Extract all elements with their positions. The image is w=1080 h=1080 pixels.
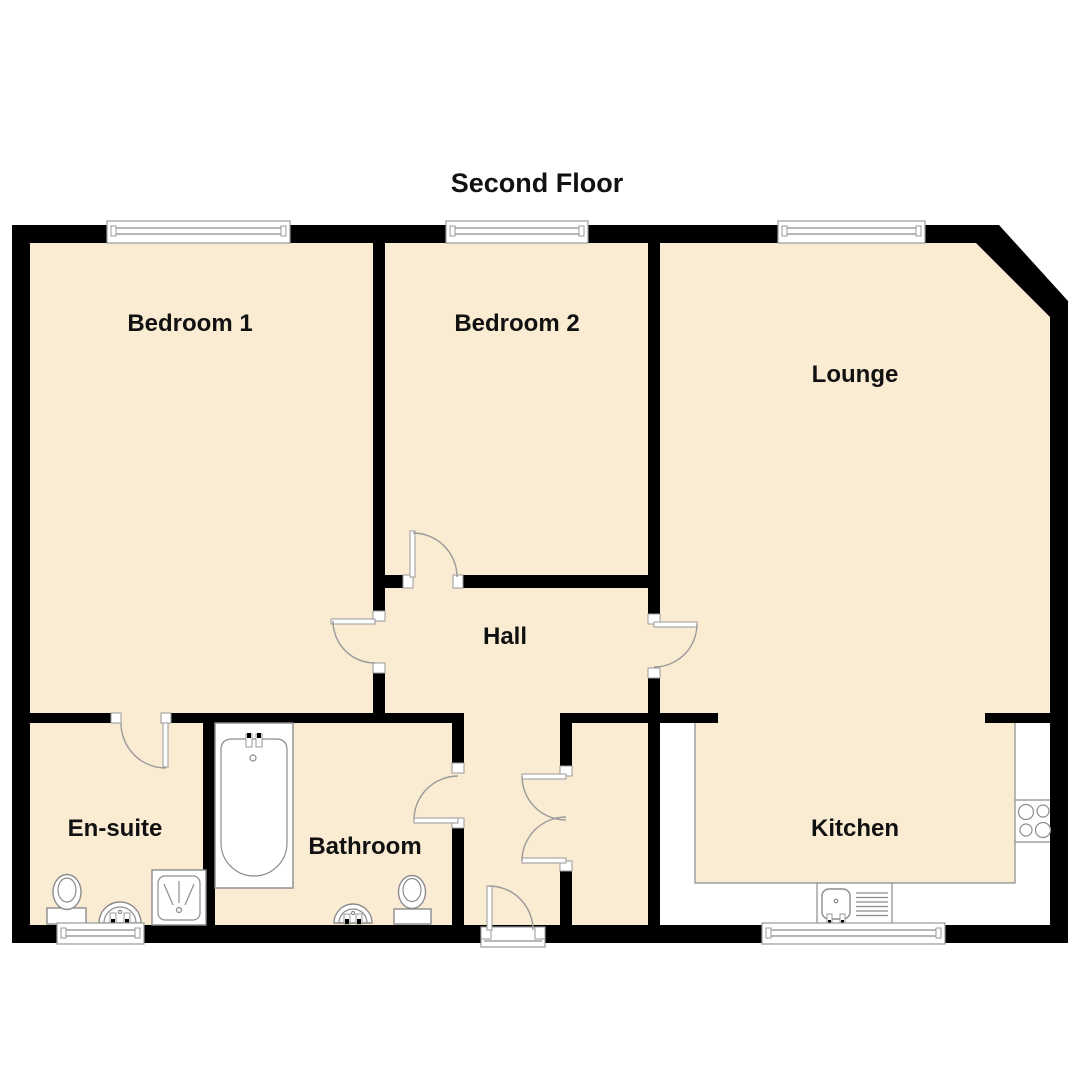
wall-bedroom2-south-right — [463, 575, 650, 588]
wall-bedroom1-east-upper — [373, 243, 385, 613]
wall-bathroom-north — [215, 713, 452, 723]
wall-bedroom2-south-left — [385, 575, 405, 588]
wall-ensuite-north-right — [169, 713, 203, 723]
room-label-hall: Hall — [483, 623, 527, 650]
floor-plan-page: Second Floor — [0, 0, 1080, 1080]
room-label-bathroom: Bathroom — [308, 833, 421, 860]
wall-ensuite-north-left — [30, 713, 113, 723]
window-ensuite — [57, 923, 144, 944]
wall-lounge-west-lower — [648, 676, 660, 928]
room-label-bedroom1: Bedroom 1 — [127, 310, 252, 337]
floor-plan: Second Floor — [0, 0, 1080, 1080]
wall-cupboard-west-lower — [560, 871, 572, 925]
room-label-kitchen: Kitchen — [811, 815, 899, 842]
wall-bathroom-east-upper — [452, 713, 464, 765]
wall-kitchen-north-right — [985, 713, 1050, 723]
wall-cupboard-north — [560, 713, 648, 723]
window-kitchen — [762, 923, 945, 944]
wall-bathroom-east-lower — [452, 828, 464, 925]
wall-kitchen-north-left — [660, 713, 718, 723]
shower-icon — [152, 870, 206, 925]
kitchen-sink-icon — [822, 889, 850, 924]
window-lounge — [778, 221, 925, 243]
floor-title: Second Floor — [451, 168, 624, 198]
room-label-bedroom2: Bedroom 2 — [454, 310, 579, 337]
wall-lounge-west-upper — [648, 243, 660, 616]
room-label-lounge: Lounge — [812, 361, 899, 388]
window-bedroom2 — [446, 221, 588, 243]
bathtub-icon — [215, 723, 293, 888]
window-bedroom1 — [107, 221, 290, 243]
room-label-ensuite: En-suite — [68, 815, 163, 842]
